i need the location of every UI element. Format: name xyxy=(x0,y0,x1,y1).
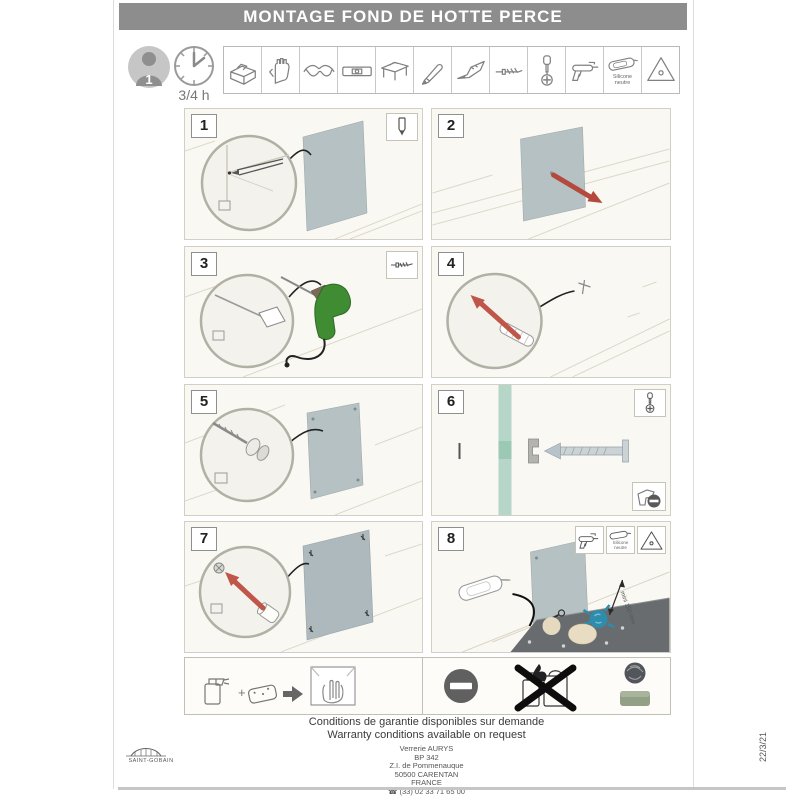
smoothing-triangle-icon xyxy=(637,526,666,554)
warranty-line-fr: Conditions de garantie disponibles sur d… xyxy=(184,716,669,729)
care-instructions-strip: + xyxy=(184,657,671,715)
step-4: 4 xyxy=(431,246,671,378)
step-1: 1 xyxy=(184,108,423,240)
no-screw-gun-icon xyxy=(632,482,666,511)
document-sheet: MONTAGE FOND DE HOTTE PERCE 1 3/4 h xyxy=(113,0,694,789)
step-2-illustration xyxy=(432,109,670,239)
screw xyxy=(561,447,623,455)
brand-name: SAINT-GOBAIN xyxy=(121,758,181,764)
abrasive-sponge-icon xyxy=(620,691,650,706)
drill-bit xyxy=(281,277,315,295)
step-5-illustration xyxy=(185,385,422,515)
spirit-level-icon xyxy=(338,47,376,93)
plate-small xyxy=(543,617,561,635)
silicone-neutre-icon: Silicone neutre xyxy=(606,526,635,554)
screwdriver-icon xyxy=(528,47,566,93)
warranty-line-en: Warranty conditions available on request xyxy=(184,729,669,742)
step-number: 6 xyxy=(438,390,464,414)
step-7: 7 xyxy=(184,521,423,653)
utility-knife-icon xyxy=(452,47,490,93)
step-3: 3 xyxy=(184,246,423,378)
instruction-sheet-page: { "title": "MONTAGE FOND DE HOTTE PERCE"… xyxy=(0,0,800,800)
soft-wipe-icon xyxy=(311,667,355,705)
toolbox-icon xyxy=(224,47,262,93)
gloves-icon xyxy=(262,47,300,93)
prohibition-icon xyxy=(444,669,478,703)
duration-label: 3/4 h xyxy=(162,87,226,103)
caulking-gun-icon xyxy=(575,526,604,554)
no-solvents-flammables-icon xyxy=(518,664,573,708)
bridge-icon xyxy=(121,744,171,758)
step-number: 3 xyxy=(191,252,217,276)
smoothing-triangle-icon xyxy=(642,47,679,93)
step-7-illustration xyxy=(185,522,422,652)
step-number: 2 xyxy=(438,114,464,138)
pencil-icon xyxy=(386,113,418,141)
step-number: 4 xyxy=(438,252,464,276)
step-number: 7 xyxy=(191,527,217,551)
steel-wool-icon xyxy=(625,663,646,684)
person-count: 1 xyxy=(145,72,152,87)
spray-cleaner-icon xyxy=(205,679,229,704)
screw-arrow xyxy=(545,443,561,459)
cleaning-instructions: + xyxy=(185,658,423,714)
drill-bit-icon xyxy=(386,251,418,279)
silicone-label2: neutre xyxy=(615,80,631,86)
zoom-circle xyxy=(202,136,296,230)
drill-bit-icon xyxy=(490,47,528,93)
silicone-label2: neutre xyxy=(614,545,627,550)
pencil-icon xyxy=(414,47,452,93)
glass-panel xyxy=(303,530,373,640)
bottom-rule xyxy=(118,787,786,790)
step-2: 2 xyxy=(431,108,671,240)
page-title: MONTAGE FOND DE HOTTE PERCE xyxy=(119,3,687,30)
step-5: 5 xyxy=(184,384,423,516)
step-8: mini 150 mm 8 xyxy=(431,521,671,653)
safety-glasses-icon xyxy=(300,47,338,93)
arrow-icon xyxy=(283,686,303,702)
step-number: 8 xyxy=(438,527,464,551)
screwdriver-icon xyxy=(634,389,666,417)
caulking-gun-icon xyxy=(566,47,604,93)
one-person-icon: 1 xyxy=(127,45,171,89)
water-splash xyxy=(590,610,608,628)
glass-panel xyxy=(303,121,367,231)
plate xyxy=(569,624,597,644)
step-number: 1 xyxy=(191,114,217,138)
sponge-icon xyxy=(248,684,277,703)
step-number: 5 xyxy=(191,390,217,414)
drill-cable xyxy=(286,339,324,364)
step-4-illustration xyxy=(432,247,670,377)
power-drill xyxy=(315,284,351,339)
step-6: 6 xyxy=(431,384,671,516)
silicone-cartridge xyxy=(457,571,512,602)
footer-text: Conditions de garantie disponibles sur d… xyxy=(184,716,669,796)
tools-strip: Silicone neutre xyxy=(223,46,680,94)
drilled-hole-mark xyxy=(579,280,591,294)
silicone-cartridge-icon: Silicone neutre xyxy=(604,47,642,93)
saint-gobain-logo: SAINT-GOBAIN xyxy=(121,744,181,764)
glass-panel xyxy=(307,403,363,499)
clock-icon xyxy=(172,44,216,88)
spacer xyxy=(529,439,539,463)
plus-sign: + xyxy=(238,685,246,700)
date-code: 22/3/21 xyxy=(758,732,768,762)
zoom-circle xyxy=(448,274,542,368)
prohibited-products xyxy=(423,658,671,714)
workbench-icon xyxy=(376,47,414,93)
